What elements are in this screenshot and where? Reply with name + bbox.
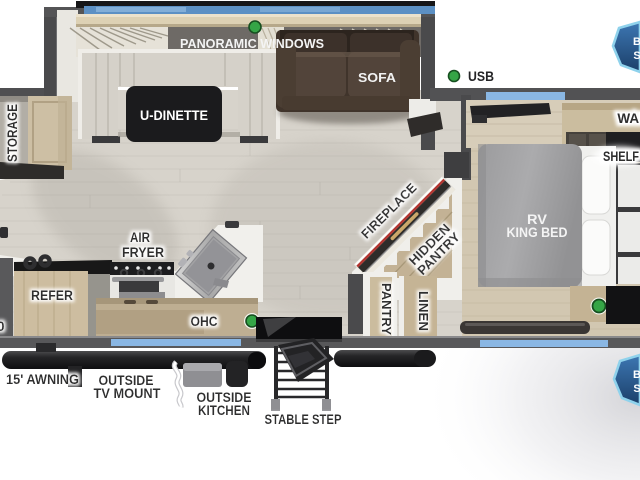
svg-text:PANTRY: PANTRY bbox=[379, 283, 393, 336]
svg-text:FRYER: FRYER bbox=[122, 245, 164, 260]
svg-text:KING BED: KING BED bbox=[507, 225, 568, 240]
svg-text:0: 0 bbox=[0, 319, 5, 334]
svg-text:USB: USB bbox=[468, 69, 494, 84]
svg-text:KITCHEN: KITCHEN bbox=[198, 403, 250, 418]
svg-text:SHELF: SHELF bbox=[603, 149, 639, 164]
svg-text:15' AWNING: 15' AWNING bbox=[6, 372, 79, 387]
svg-text:S: S bbox=[633, 383, 640, 395]
svg-text:S: S bbox=[633, 50, 640, 62]
svg-text:B: B bbox=[633, 369, 640, 381]
svg-text:REFER: REFER bbox=[31, 288, 73, 303]
svg-text:OHC: OHC bbox=[191, 314, 218, 329]
svg-text:TV MOUNT: TV MOUNT bbox=[94, 386, 162, 401]
svg-text:PANORAMIC WINDOWS: PANORAMIC WINDOWS bbox=[180, 36, 324, 51]
svg-text:B: B bbox=[633, 36, 640, 48]
svg-text:U-DINETTE: U-DINETTE bbox=[140, 108, 208, 123]
svg-text:AIR: AIR bbox=[130, 230, 150, 245]
svg-text:WARD: WARD bbox=[617, 111, 640, 126]
svg-text:LINEN: LINEN bbox=[416, 291, 430, 331]
svg-text:STORAGE: STORAGE bbox=[5, 104, 20, 162]
svg-text:SOFA: SOFA bbox=[358, 70, 397, 85]
svg-text:STABLE STEP: STABLE STEP bbox=[265, 412, 342, 427]
